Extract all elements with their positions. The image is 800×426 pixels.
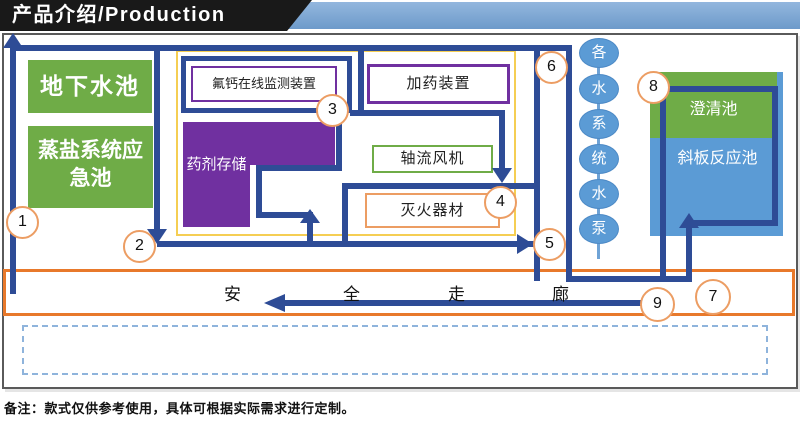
route-marker-5: 5 [533, 228, 566, 261]
route-7-stem [686, 228, 692, 278]
route-line-top-horizontal [10, 45, 572, 51]
route-arrow-up-3 [300, 209, 320, 223]
axial-fan-box: 轴流风机 [372, 145, 493, 173]
salt-emergency-pool-box: 蒸盐系统应急池 [28, 126, 153, 208]
dosing-device-box: 加药装置 [367, 64, 510, 104]
route-u-bottom [566, 276, 692, 282]
route-arrow-down-4 [492, 168, 512, 183]
header-banner: 产品介绍/Production [0, 0, 312, 31]
pump-node: 水 [579, 179, 619, 209]
route-pool-left [660, 86, 666, 282]
corridor-char: 安 [224, 280, 241, 305]
route-dosing-v1 [358, 48, 364, 110]
route-marker-9: 9 [640, 287, 675, 322]
corridor-char: 全 [343, 280, 360, 305]
underground-pool-label: 地下水池 [28, 60, 152, 113]
route-marker-3: 3 [316, 94, 349, 127]
route-pool-bottom [690, 220, 778, 226]
corridor-char: 走 [448, 280, 465, 305]
route-l-v2 [256, 165, 262, 218]
route-pool-right [772, 86, 778, 226]
corridor-char: 廊 [552, 280, 569, 305]
route-line-left-vertical [10, 45, 16, 294]
route-marker-7: 7 [695, 279, 731, 315]
underground-pool-box: 地下水池 [28, 60, 152, 113]
header-blue-bar [286, 2, 800, 29]
route-arrow-right-5 [517, 234, 533, 254]
dashed-zone [22, 325, 768, 375]
chemical-storage-label: 药剂存储 [183, 152, 250, 178]
dosing-device-label: 加药装置 [370, 67, 507, 101]
fluoride-monitor-label: 氟钙在线监测装置 [193, 68, 335, 100]
route-pool-top [660, 86, 778, 92]
clarifier-label: 澄清池 [650, 95, 777, 119]
route-marker-2: 2 [123, 230, 156, 263]
product-intro-diagram: { "banner": { "title": "产品介绍/Production"… [0, 0, 800, 426]
fire-equipment-label: 灭火器材 [367, 195, 498, 226]
corridor-arrow-line [283, 300, 657, 306]
inclined-plate-reactor-label: 斜板反应池 [660, 144, 775, 168]
pump-node: 泵 [579, 214, 619, 244]
fluoride-monitor-box: 氟钙在线监测装置 [191, 66, 337, 102]
page-title: 产品介绍/Production [0, 0, 312, 31]
route-dosing-h [350, 110, 505, 116]
pump-node: 水 [579, 74, 619, 104]
route-fire-left [342, 183, 348, 247]
route-line-v2 [154, 47, 160, 230]
fire-equipment-box: 灭火器材 [365, 193, 500, 228]
corridor-arrow-left [264, 294, 285, 312]
axial-fan-label: 轴流风机 [374, 147, 491, 171]
route-marker-8: 8 [637, 71, 670, 104]
route-l-h1 [256, 165, 342, 171]
pump-node: 统 [579, 144, 619, 174]
pump-node: 系 [579, 109, 619, 139]
route-u-right [566, 45, 572, 281]
route-marker-4: 4 [484, 186, 517, 219]
pump-node: 各 [579, 38, 619, 68]
route-marker-6: 6 [535, 51, 568, 84]
salt-emergency-pool-label: 蒸盐系统应急池 [28, 126, 153, 193]
route-dosing-v2 [499, 110, 505, 170]
footer-note: 备注：款式仅供参考使用，具体可根据实际需求进行定制。 [4, 398, 355, 417]
route-marker-1: 1 [6, 206, 39, 239]
